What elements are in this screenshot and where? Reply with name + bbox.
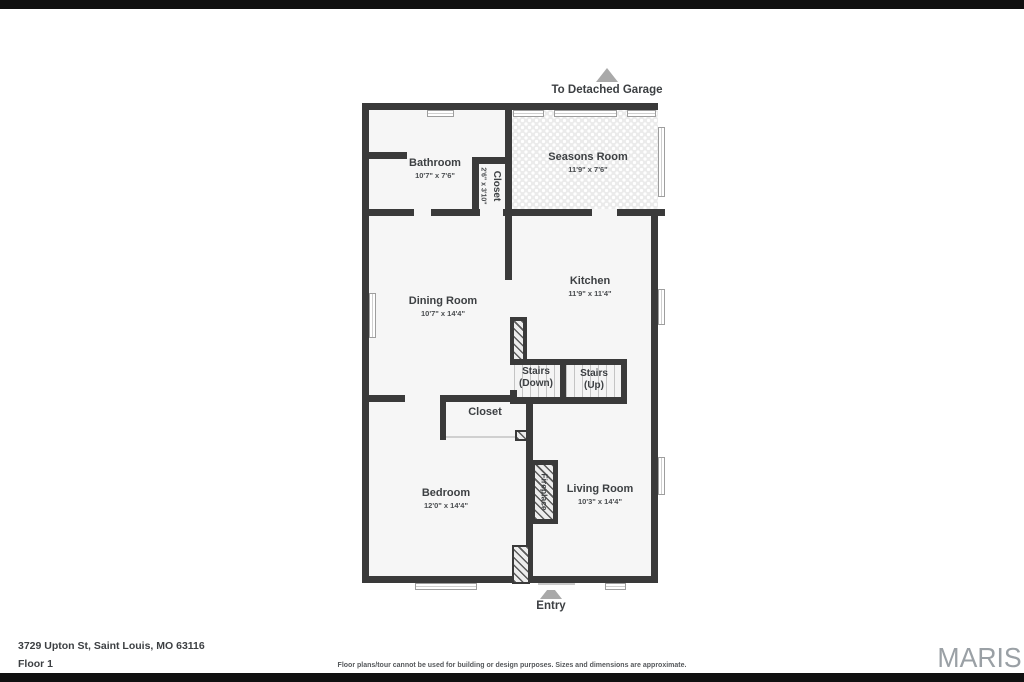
bedroom-window	[415, 583, 477, 590]
stairs-left-stub	[510, 390, 517, 397]
chimney-hatch	[510, 317, 527, 365]
hall-closet-label: Closet	[468, 407, 502, 418]
bottom-chimney-hatch	[512, 545, 530, 584]
footer-floor-label: Floor 1	[18, 658, 53, 670]
garage-label: To Detached Garage	[552, 84, 663, 96]
seasons-right-window	[658, 127, 665, 197]
seasons-door-opening	[592, 209, 617, 216]
closet-door-opening	[480, 209, 503, 216]
bathroom-door-opening	[414, 209, 431, 216]
bedroom-label: Bedroom	[422, 488, 470, 499]
stairs-down-label: Stairs	[522, 367, 550, 377]
dining-room-window	[369, 293, 376, 338]
bedroom-door-opening	[405, 395, 440, 402]
garage-arrow-icon	[596, 68, 618, 82]
seasons-window-3	[627, 110, 656, 117]
bathroom-wall-stub	[369, 152, 407, 159]
stairs-up-label: Stairs	[580, 369, 608, 379]
bathroom-dims: 10'7" x 7'6"	[415, 172, 455, 180]
seasons-window-1	[513, 110, 544, 117]
hall-closet-left-wall	[440, 402, 446, 440]
wall-dining-kitchen	[505, 216, 512, 280]
kitchen-dims: 11'9" x 11'4"	[568, 290, 611, 298]
seasons-room-label: Seasons Room	[548, 152, 627, 163]
hall-closet-opening-line	[446, 436, 515, 438]
footer-disclaimer: Floor plans/tour cannot be used for buil…	[338, 662, 687, 669]
letterbox-top	[0, 0, 1024, 9]
dining-room-label: Dining Room	[409, 296, 477, 307]
bathroom-window	[427, 110, 454, 117]
footer-address: 3729 Upton St, Saint Louis, MO 63116	[18, 640, 205, 652]
dining-room-dims: 10'7" x 14'4"	[421, 310, 465, 318]
maris-logo: MARIS	[938, 642, 1022, 674]
bedroom-dims: 12'0" x 14'4"	[424, 502, 468, 510]
letterbox-bottom	[0, 673, 1024, 682]
seasons-room-dims: 11'9" x 7'6"	[568, 166, 607, 174]
fireplace-label: Fireplace	[540, 473, 549, 510]
living-room-bottom-window	[605, 583, 626, 590]
closet-top-dims: 2'6" x 3'10"	[480, 167, 487, 204]
entry-door-opening	[538, 583, 575, 590]
closet-top-label: Closet	[491, 171, 501, 202]
kitchen-window	[658, 289, 665, 325]
floor-plan: Bathroom 10'7" x 7'6" Closet 2'6" x 3'10…	[362, 103, 658, 583]
living-room-label: Living Room	[567, 484, 634, 495]
seasons-window-2	[554, 110, 617, 117]
stairs-up-sub: (Up)	[584, 381, 604, 391]
entry-label: Entry	[536, 600, 565, 612]
stairs-down-sub: (Down)	[519, 379, 553, 389]
kitchen-label: Kitchen	[570, 276, 610, 287]
living-room-dims: 10'3" x 14'4"	[578, 498, 622, 506]
bathroom-label: Bathroom	[409, 158, 461, 169]
living-room-right-window	[658, 457, 665, 495]
closet-left-wall	[472, 157, 479, 216]
